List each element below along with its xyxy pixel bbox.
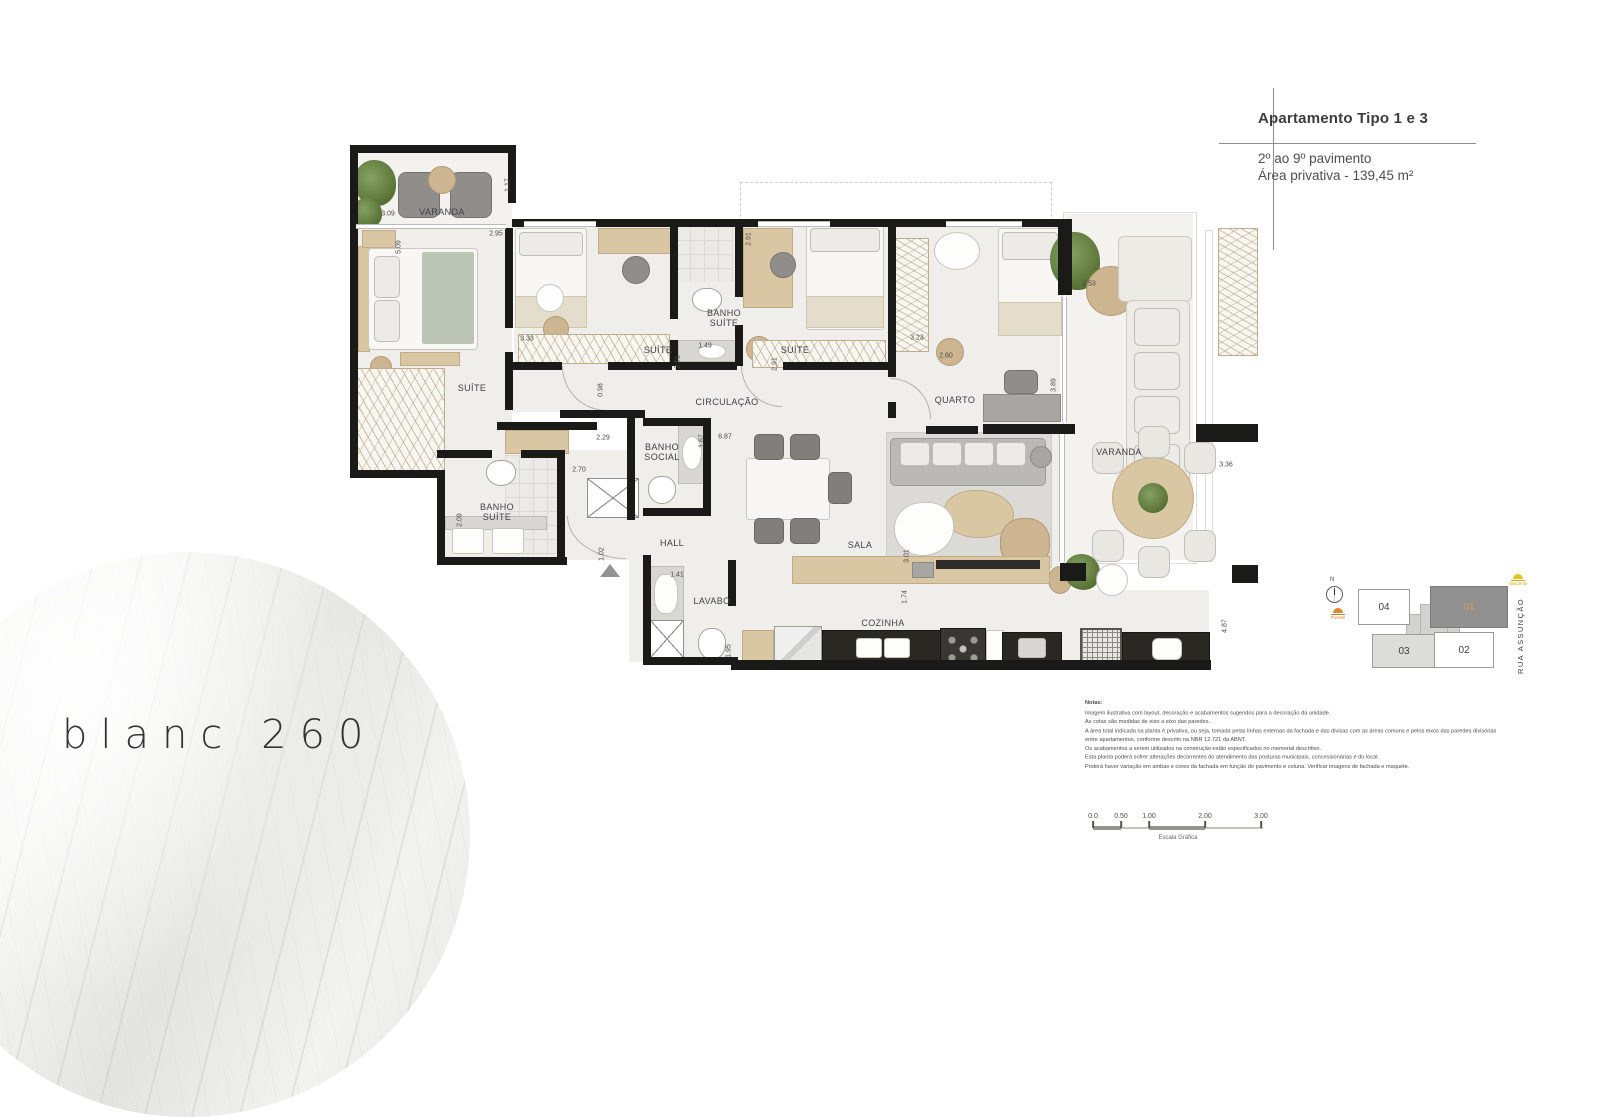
- trellis: [1218, 228, 1258, 356]
- dining-table: [746, 458, 830, 520]
- room-label: SALA: [848, 540, 873, 550]
- blanket: [422, 252, 474, 344]
- dimension-label: 1.02: [599, 547, 606, 561]
- note-line: Esta planta poderá sofrer alterações dec…: [1085, 753, 1496, 762]
- scale-caption: Escala Gráfica: [1158, 835, 1197, 841]
- wall-segment: [505, 352, 513, 410]
- wall-segment: [735, 219, 743, 297]
- room-label: VARANDA: [1096, 447, 1142, 457]
- scale-tick: 1.00: [1142, 813, 1156, 828]
- wall-segment: [437, 470, 445, 565]
- dimension-label: 6.87: [718, 434, 732, 441]
- wall-segment: [731, 660, 1211, 670]
- brand-logo: blanc 260: [62, 712, 376, 758]
- wall-segment: [557, 450, 565, 565]
- room-label: HALL: [660, 538, 684, 548]
- floor-lamp: [1030, 446, 1052, 468]
- note-line: Imagem ilustrativa com layout, decoração…: [1085, 708, 1496, 717]
- wall-segment: [643, 555, 651, 665]
- key-plan-unit-02: 02: [1434, 632, 1494, 668]
- dimension-label: 2.91: [675, 355, 682, 369]
- wall-segment: [350, 228, 358, 478]
- dimension-label: 3.36: [1219, 462, 1233, 469]
- note-line: Poderá haver variação em ambas e cores d…: [1085, 762, 1496, 771]
- cushion: [1134, 308, 1180, 346]
- dimension-label: 2.29: [596, 435, 610, 442]
- wall-segment: [888, 402, 896, 418]
- wall-segment: [437, 450, 492, 458]
- wall-segment: [508, 145, 516, 203]
- dimension-label: 1.49: [698, 343, 712, 350]
- cushion: [964, 442, 994, 466]
- chair: [828, 472, 852, 504]
- compass-icon: [1326, 586, 1343, 603]
- blanket: [998, 302, 1062, 336]
- dimension-label: 3.33: [520, 336, 534, 343]
- side-table: [428, 166, 456, 194]
- key-plan-unit-01-highlighted: 01: [1430, 586, 1508, 628]
- dimension-label: 5.09: [396, 240, 403, 254]
- wall-segment: [670, 219, 678, 319]
- window: [1062, 297, 1067, 422]
- sink: [856, 638, 882, 658]
- toilet: [648, 476, 676, 504]
- toilet: [486, 460, 516, 486]
- scale-tick: 2.00: [1198, 813, 1212, 828]
- dimension-label: 0.98: [598, 383, 605, 397]
- scale-tick-mark: [1260, 821, 1262, 828]
- scale-segment: [1149, 826, 1205, 830]
- room-label: BANHO SUÍTE: [480, 502, 514, 522]
- scale-tick: 0.0: [1088, 813, 1098, 828]
- wall-segment: [888, 219, 896, 377]
- note-line: A área total indicada na planta é privat…: [1085, 726, 1496, 735]
- dimension-label: 2.91: [772, 357, 779, 371]
- pillow: [519, 232, 583, 256]
- scale-tick-mark: [1148, 821, 1150, 828]
- scale-tick-label: 0.0: [1088, 813, 1098, 820]
- wall-segment: [983, 424, 1075, 434]
- room-label: BANHO SUÍTE: [707, 308, 741, 328]
- dimension-label: 2.60: [939, 353, 953, 360]
- wall-segment: [512, 362, 562, 370]
- dimension-label: 4.87: [1222, 619, 1229, 633]
- wall-segment: [926, 426, 978, 434]
- sink: [1152, 638, 1182, 660]
- desk: [598, 228, 674, 254]
- chair: [1138, 426, 1170, 458]
- dimension-label: 3.23: [910, 335, 924, 342]
- wall-segment: [643, 657, 738, 665]
- tv: [936, 560, 1040, 569]
- scale-tick-label: 0.50: [1114, 813, 1128, 820]
- street-label: RUA ASSUNÇÃO: [1516, 592, 1525, 674]
- notes-block: Notas: Imagem ilustrativa com layout, de…: [1085, 698, 1496, 771]
- chair: [754, 518, 784, 544]
- nightstand: [362, 230, 396, 248]
- desk-chair: [770, 252, 796, 278]
- cushion: [932, 442, 962, 466]
- toilet: [698, 628, 726, 660]
- pillow: [810, 228, 880, 252]
- wall-segment: [497, 422, 597, 430]
- sink: [1018, 638, 1046, 658]
- bench: [400, 352, 460, 366]
- scale-tick: 0.50: [1114, 813, 1128, 828]
- note-line: As cotas são medidas de eixo a eixo das …: [1085, 717, 1496, 726]
- dimension-label: 2.91: [746, 232, 753, 246]
- dimension-label: 3.01: [904, 549, 911, 563]
- wall-segment: [350, 145, 358, 233]
- room-label: LAVABO: [693, 596, 730, 606]
- chair: [1184, 442, 1216, 474]
- scale-tick-mark: [1204, 821, 1206, 828]
- dimension-label: 1.95: [726, 644, 733, 658]
- notes-lines: Imagem ilustrativa com layout, decoração…: [1085, 708, 1496, 770]
- pillow: [374, 300, 400, 342]
- key-plan-unit-04: 04: [1358, 589, 1410, 625]
- shaft: [650, 620, 684, 658]
- room-label: SUÍTE: [781, 345, 810, 355]
- room-label: CIRCULAÇÃO: [695, 397, 758, 407]
- wall-segment: [703, 418, 711, 516]
- dimension-label: 3.89: [1051, 378, 1058, 392]
- facade-line: [1205, 230, 1213, 562]
- cushion: [1134, 352, 1180, 390]
- sink: [452, 528, 484, 554]
- wall-segment: [643, 508, 711, 516]
- chair: [790, 434, 820, 460]
- sunset-label: Poente: [1328, 616, 1348, 621]
- room-label: BANHO SOCIAL: [644, 442, 679, 462]
- wardrobe: [355, 368, 445, 474]
- cushion: [900, 442, 930, 466]
- window: [946, 221, 1022, 227]
- wall-segment: [1058, 219, 1072, 295]
- chair: [790, 518, 820, 544]
- room-label: SUÍTE: [458, 383, 487, 393]
- room-label: COZINHA: [861, 618, 904, 628]
- window: [356, 224, 506, 229]
- cabinet: [742, 630, 774, 664]
- graphic-scale: 0.0 0.50 1.00 2.00 3.00 Escala Gráfica: [1093, 813, 1269, 843]
- sink: [884, 638, 910, 658]
- dimension-label: 2.95: [489, 231, 503, 238]
- wall-segment: [1060, 563, 1086, 581]
- room-label: VARANDA: [419, 207, 465, 217]
- shower: [676, 226, 733, 282]
- sunset-icon: Poente: [1328, 608, 1348, 621]
- dimension-label: 1.41: [670, 572, 684, 579]
- key-plan-unit-03: 03: [1372, 634, 1436, 668]
- decor: [912, 562, 934, 578]
- wall-segment: [627, 410, 635, 520]
- wall-segment: [676, 362, 737, 370]
- north-label: N: [1330, 577, 1334, 583]
- note-line: Os acabamentos a serem utilizados na con…: [1085, 744, 1496, 753]
- sliding-door: [1059, 434, 1065, 562]
- notes-heading: Notas:: [1085, 698, 1496, 707]
- room-label: SUÍTE: [644, 345, 673, 355]
- cushion: [996, 442, 1026, 466]
- scale-tick: 3.00: [1254, 813, 1268, 828]
- blanket: [806, 296, 884, 328]
- wall-segment: [1196, 424, 1258, 442]
- wall-segment: [608, 362, 672, 370]
- side-table: [934, 232, 980, 270]
- chair: [754, 434, 784, 460]
- wall-segment: [735, 325, 743, 366]
- sofa-chaise: [1118, 236, 1192, 302]
- side-table: [536, 284, 564, 312]
- chair: [1138, 546, 1170, 578]
- dimension-label: 2.70: [572, 467, 586, 474]
- wall-segment: [350, 470, 445, 478]
- dimension-label: 1.17: [505, 178, 512, 192]
- window: [758, 221, 830, 227]
- entrance-arrow-icon: [600, 564, 620, 577]
- sunrise-icon: Nascente: [1508, 574, 1528, 587]
- upper-projection: [740, 182, 1052, 222]
- desk-chair: [622, 256, 650, 284]
- scale-tick-mark: [1120, 821, 1122, 828]
- window: [524, 221, 596, 227]
- wall-segment: [350, 145, 516, 153]
- pillow: [374, 256, 400, 298]
- scale-tick-mark: [1092, 821, 1094, 828]
- desk: [983, 394, 1061, 422]
- wall-segment: [1232, 565, 1258, 583]
- sink: [492, 528, 524, 554]
- wall-segment: [783, 362, 894, 370]
- floorplan-page: blanc 260 Apartamento Tipo 1 e 3 2º ao 9…: [0, 0, 1600, 900]
- wall-segment: [437, 557, 567, 565]
- scale-tick-label: 3.00: [1254, 813, 1268, 820]
- note-line: entre apartamentos, conforme descrito na…: [1085, 735, 1496, 744]
- desk-chair: [1004, 370, 1038, 394]
- scale-tick-label: 1.00: [1142, 813, 1156, 820]
- sink: [654, 574, 678, 614]
- wall-segment: [521, 450, 563, 458]
- dimension-label: 2.09: [457, 513, 464, 527]
- dimension-label: 1.74: [902, 590, 909, 604]
- side-table: [1096, 564, 1128, 596]
- dimension-label: 1.67: [699, 434, 706, 448]
- chair: [1184, 530, 1216, 562]
- dimension-label: 2.53: [1082, 281, 1096, 288]
- wall-segment: [505, 228, 513, 328]
- centerpiece: [1138, 483, 1168, 513]
- dimension-label: 3.09: [381, 211, 395, 218]
- chair: [1092, 530, 1124, 562]
- wall-segment: [643, 418, 705, 426]
- room-label: QUARTO: [935, 395, 976, 405]
- sunrise-label: Nascente: [1508, 582, 1528, 587]
- scale-tick-label: 2.00: [1198, 813, 1212, 820]
